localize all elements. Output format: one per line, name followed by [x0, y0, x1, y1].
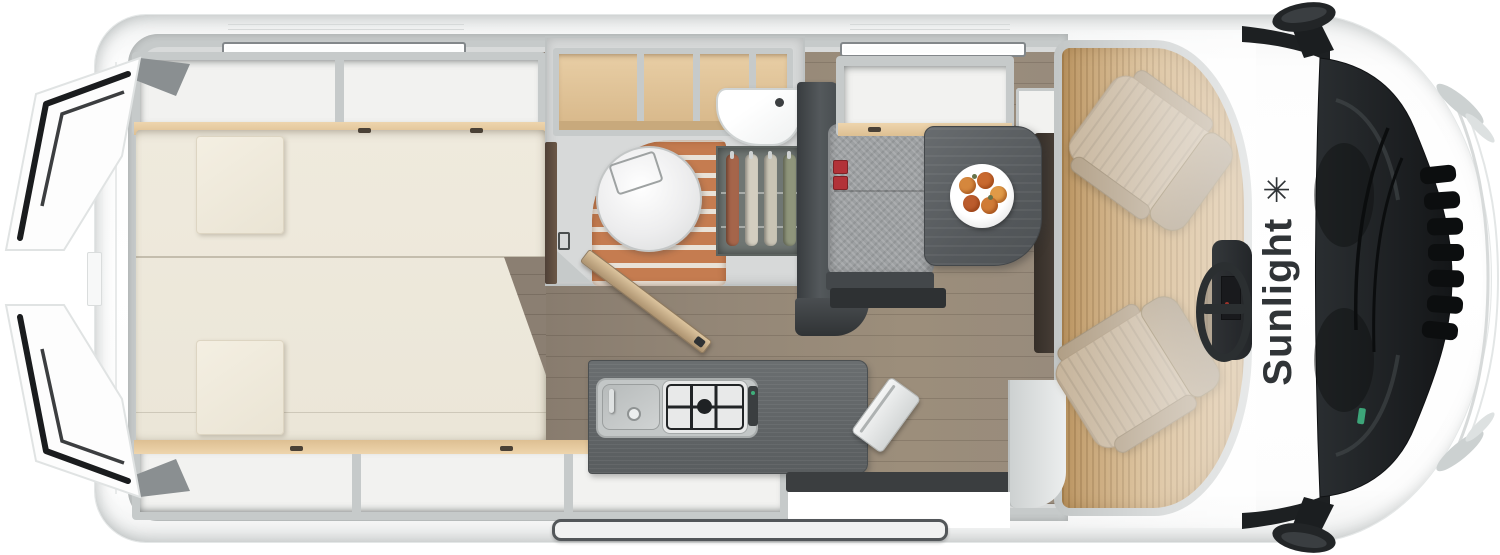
- latch-clip: [358, 128, 371, 133]
- sliding-door-rail: [552, 519, 948, 541]
- fruit-plate: [950, 164, 1014, 228]
- door-handle: [693, 336, 706, 348]
- brand-name: Sunlight: [1256, 218, 1301, 386]
- bathroom-side-panel: [545, 142, 557, 284]
- hanging-clothes: [726, 154, 739, 246]
- fruit-leaf: [972, 174, 977, 179]
- latch-clip: [500, 446, 513, 451]
- gas-hob: [662, 380, 748, 434]
- kitchen-sink: [602, 384, 660, 430]
- rear-doors-open: [0, 0, 340, 555]
- hood-curve: [1470, 120, 1498, 436]
- shelf-divider: [637, 54, 644, 130]
- wardrobe: [716, 146, 802, 256]
- latch-clip: [470, 128, 483, 133]
- brand-lettering: Sunlight ✳: [1243, 120, 1313, 440]
- hob-led: [751, 391, 755, 395]
- dinette-wall-window: [840, 42, 1026, 57]
- hanging-clothes: [783, 154, 796, 246]
- sink-drain: [627, 407, 641, 421]
- faucet: [609, 389, 614, 413]
- hob-burner: [697, 399, 712, 414]
- fruit: [963, 195, 980, 212]
- side-mirror-top: [1270, 0, 1338, 58]
- hanging-clothes: [764, 154, 777, 246]
- seatbelt-buckle: [833, 160, 848, 174]
- toilet-lid-seam: [608, 150, 664, 195]
- side-mirror-bottom: [1270, 497, 1338, 555]
- towel-hook: [558, 232, 570, 250]
- door-b-pillar: [1008, 380, 1066, 508]
- dinette-bench: [828, 124, 934, 276]
- fruit: [959, 177, 976, 194]
- seatbelt-buckle: [833, 176, 848, 190]
- shelf-divider: [352, 454, 361, 512]
- dinette-overhead-cabinet: [836, 56, 1014, 136]
- latch-clip: [868, 127, 881, 132]
- fruit-leaf: [988, 195, 993, 200]
- cabinet-compartment: [844, 66, 1006, 123]
- bench-seam: [834, 190, 928, 192]
- fruit: [977, 172, 994, 189]
- bench-base-frame: [830, 288, 946, 308]
- hob-control-panel: [748, 386, 758, 426]
- hanging-clothes: [745, 154, 758, 246]
- camper-floorplan: Sunlight ✳: [0, 0, 1500, 555]
- shelf-divider: [564, 454, 573, 512]
- sunlight-logo-icon: ✳: [1258, 174, 1298, 204]
- roof-seam-front: [850, 24, 1010, 30]
- toilet: [596, 146, 702, 252]
- basin-drain: [775, 98, 784, 107]
- entry-step-threshold: [786, 472, 1012, 492]
- shelf-divider: [693, 54, 700, 130]
- seat-reflection: [1314, 143, 1374, 247]
- seat-reflection: [1314, 308, 1374, 412]
